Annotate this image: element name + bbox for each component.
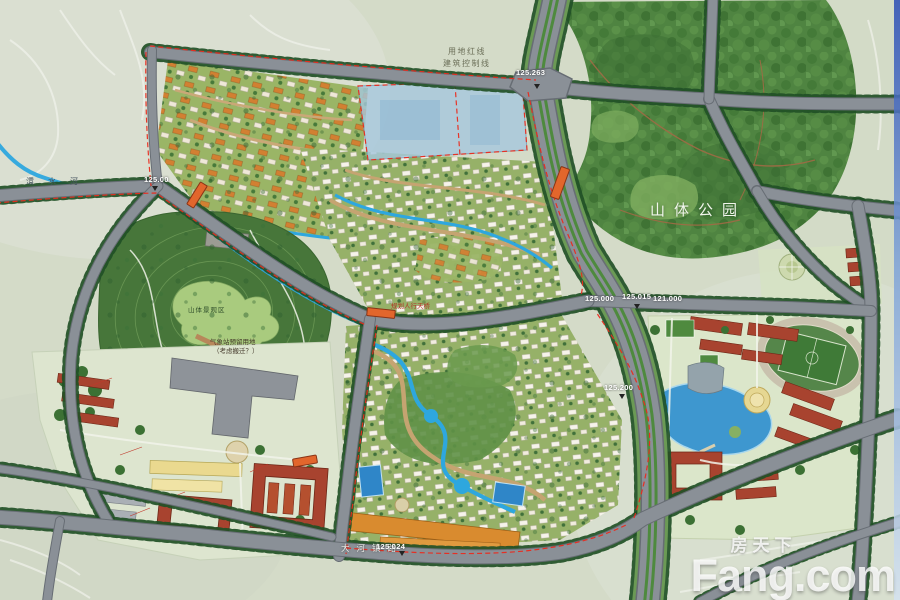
- scan-edge-strip: [894, 0, 900, 600]
- map-artwork: [0, 0, 900, 600]
- master-plan-map: 山体公园 用地红线 建筑控制线 澴水河 大河镇路 规划人行天桥 气象站预留用地 …: [0, 0, 900, 600]
- pool: [358, 465, 383, 497]
- district-south-central-residential: [342, 312, 622, 553]
- pool: [493, 482, 525, 506]
